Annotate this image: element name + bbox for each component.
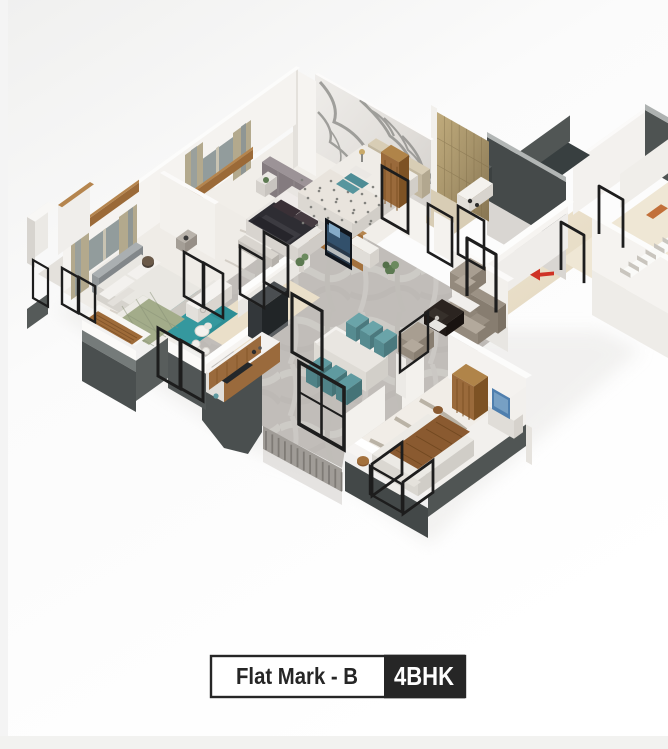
svg-text:4BHK: 4BHK	[394, 661, 454, 691]
svg-text:Flat Mark - B: Flat Mark - B	[236, 663, 358, 689]
